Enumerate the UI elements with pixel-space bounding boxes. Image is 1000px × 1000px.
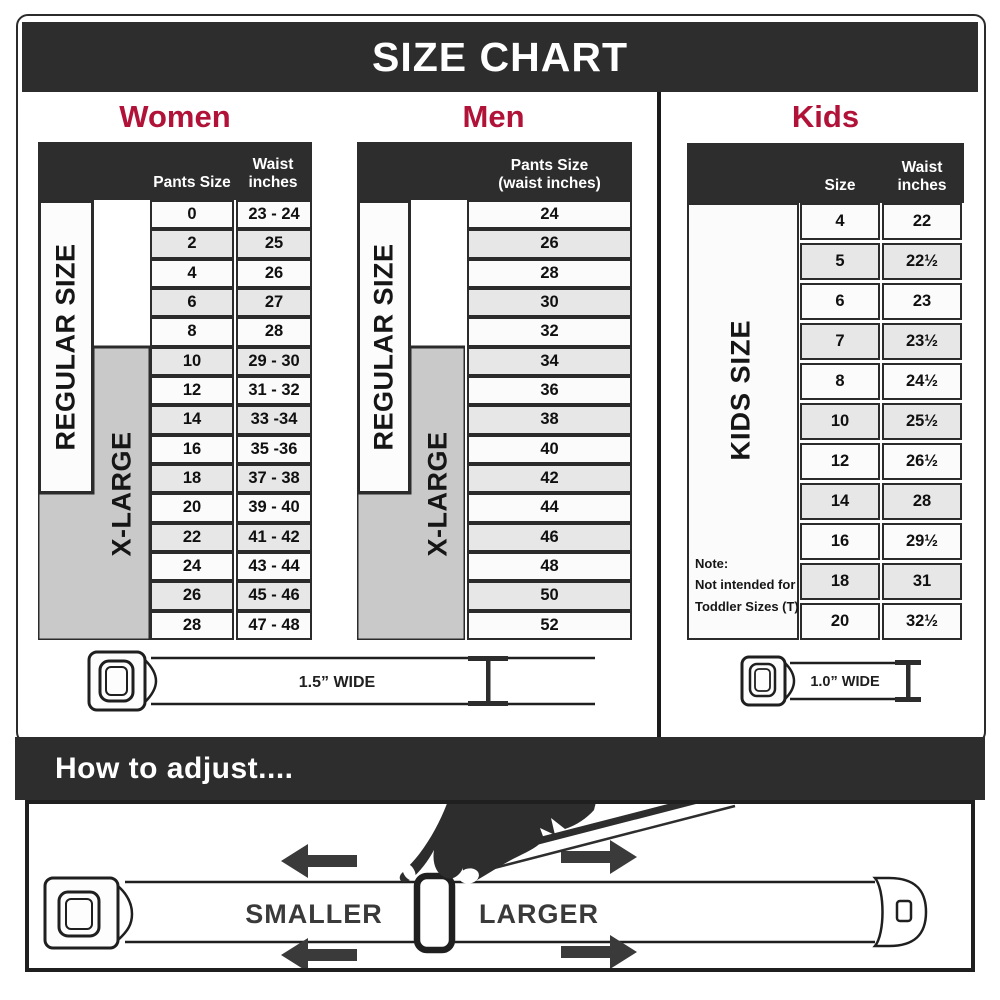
size-cell: 12 — [800, 443, 880, 480]
women-col1-header: Pants Size — [150, 142, 234, 200]
larger-label: LARGER — [479, 899, 599, 929]
size-cell: 46 — [467, 523, 632, 552]
size-cell: 28 — [467, 259, 632, 288]
size-cell: 14 — [150, 405, 234, 434]
size-cell: 52 — [467, 611, 632, 640]
size-cell: 28 — [150, 611, 234, 640]
size-cell: 31 — [882, 563, 962, 600]
size-cell: 4 — [150, 259, 234, 288]
width-measure-icon — [468, 656, 508, 706]
size-cell: 23½ — [882, 323, 962, 360]
size-cell: 8 — [150, 317, 234, 346]
size-cell: 0 — [150, 200, 234, 229]
buckle-tab — [118, 886, 132, 940]
size-cell: 35 -36 — [236, 435, 312, 464]
kids-belt-illustration: 1.0” WIDE — [740, 655, 925, 707]
size-cell: 28 — [882, 483, 962, 520]
kids-size-category-label: KIDS SIZE Note: Not intended for Toddler… — [687, 203, 799, 640]
women-regular-label: REGULAR SIZE — [51, 243, 82, 450]
size-cell: 8 — [800, 363, 880, 400]
size-cell: 24½ — [882, 363, 962, 400]
size-cell: 26 — [236, 259, 312, 288]
kids-note: Note: Not intended for Toddler Sizes (T) — [695, 553, 799, 617]
kids-col2-header: Waist inches — [882, 143, 962, 203]
size-cell: 48 — [467, 552, 632, 581]
belt-width-label: 1.5” WIDE — [299, 674, 376, 691]
women-col2-header: Waist inches — [234, 142, 312, 200]
men-heading: Men — [355, 94, 632, 140]
men-col-header: Pants Size (waist inches) — [467, 142, 632, 200]
size-cell: 16 — [150, 435, 234, 464]
belt-adjuster — [417, 876, 452, 950]
kids-waist-column: 2222½2323½24½25½26½2829½3132½ — [882, 203, 962, 640]
size-cell: 36 — [467, 376, 632, 405]
adjust-illustration-box: SMALLER LARGER — [25, 800, 975, 972]
how-to-adjust-heading: How to adjust.... — [15, 737, 985, 800]
women-size-category-labels: REGULAR SIZE X-LARGE — [38, 200, 150, 640]
size-cell: 26½ — [882, 443, 962, 480]
women-pants-size-column: 0246810121416182022242628 — [150, 200, 234, 640]
men-xlarge-label: X-LARGE — [423, 432, 454, 557]
size-cell: 31 - 32 — [236, 376, 312, 405]
size-cell: 22 — [150, 523, 234, 552]
kids-belt-graphic: 1.0” WIDE — [740, 655, 925, 707]
size-cell: 10 — [150, 347, 234, 376]
kids-heading: Kids — [687, 94, 964, 140]
size-cell: 37 - 38 — [236, 464, 312, 493]
size-cell: 34 — [467, 347, 632, 376]
women-heading: Women — [38, 94, 312, 140]
page-title: SIZE CHART — [22, 22, 978, 92]
kids-size-label: KIDS SIZE — [726, 319, 757, 460]
size-chart-page: SIZE CHART Women Men Kids Pants Size Wai… — [0, 0, 1000, 1000]
size-cell: 7 — [800, 323, 880, 360]
size-cell: 20 — [150, 493, 234, 522]
size-cell: 16 — [800, 523, 880, 560]
size-cell: 38 — [467, 405, 632, 434]
size-cell: 29 - 30 — [236, 347, 312, 376]
size-cell: 5 — [800, 243, 880, 280]
women-xlarge-label: X-LARGE — [107, 432, 138, 557]
size-cell: 39 - 40 — [236, 493, 312, 522]
size-cell: 23 — [882, 283, 962, 320]
men-regular-label: REGULAR SIZE — [369, 243, 400, 450]
size-cell: 26 — [150, 581, 234, 610]
size-cell: 4 — [800, 203, 880, 240]
size-cell: 41 - 42 — [236, 523, 312, 552]
size-cell: 18 — [800, 563, 880, 600]
men-size-category-labels: REGULAR SIZE X-LARGE — [357, 200, 465, 640]
size-cell: 25½ — [882, 403, 962, 440]
smaller-label: SMALLER — [245, 899, 383, 929]
adult-belt-illustration: 1.5” WIDE — [87, 650, 595, 712]
size-cell: 50 — [467, 581, 632, 610]
adjust-illustration: SMALLER LARGER — [29, 804, 971, 968]
size-cell: 43 - 44 — [236, 552, 312, 581]
kids-col1-header: Size — [800, 143, 880, 203]
buckle-tab — [145, 660, 156, 702]
size-cell: 2 — [150, 229, 234, 258]
women-waist-column: 23 - 242526272829 - 3031 - 3233 -3435 -3… — [236, 200, 312, 640]
adult-belt-graphic: 1.5” WIDE — [87, 650, 595, 712]
size-cell: 23 - 24 — [236, 200, 312, 229]
size-cell: 27 — [236, 288, 312, 317]
size-cell: 24 — [467, 200, 632, 229]
size-cell: 14 — [800, 483, 880, 520]
size-cell: 29½ — [882, 523, 962, 560]
size-cell: 10 — [800, 403, 880, 440]
size-cell: 20 — [800, 603, 880, 640]
size-cell: 32½ — [882, 603, 962, 640]
size-cell: 6 — [800, 283, 880, 320]
kids-sizes-column: 45678101214161820 — [800, 203, 880, 640]
size-cell: 30 — [467, 288, 632, 317]
belt-width-label: 1.0” WIDE — [810, 674, 880, 690]
size-cell: 28 — [236, 317, 312, 346]
size-cell: 22½ — [882, 243, 962, 280]
size-cell: 26 — [467, 229, 632, 258]
size-cell: 25 — [236, 229, 312, 258]
width-measure-icon — [895, 660, 921, 702]
size-cell: 32 — [467, 317, 632, 346]
size-cell: 47 - 48 — [236, 611, 312, 640]
size-cell: 22 — [882, 203, 962, 240]
section-divider — [657, 92, 661, 740]
size-cell: 44 — [467, 493, 632, 522]
size-cell: 18 — [150, 464, 234, 493]
belt-tip-hole — [897, 901, 911, 921]
size-cell: 42 — [467, 464, 632, 493]
size-cell: 6 — [150, 288, 234, 317]
size-cell: 40 — [467, 435, 632, 464]
men-sizes-column: 242628303234363840424446485052 — [467, 200, 632, 640]
size-cell: 12 — [150, 376, 234, 405]
size-cell: 24 — [150, 552, 234, 581]
size-cell: 33 -34 — [236, 405, 312, 434]
size-cell: 45 - 46 — [236, 581, 312, 610]
